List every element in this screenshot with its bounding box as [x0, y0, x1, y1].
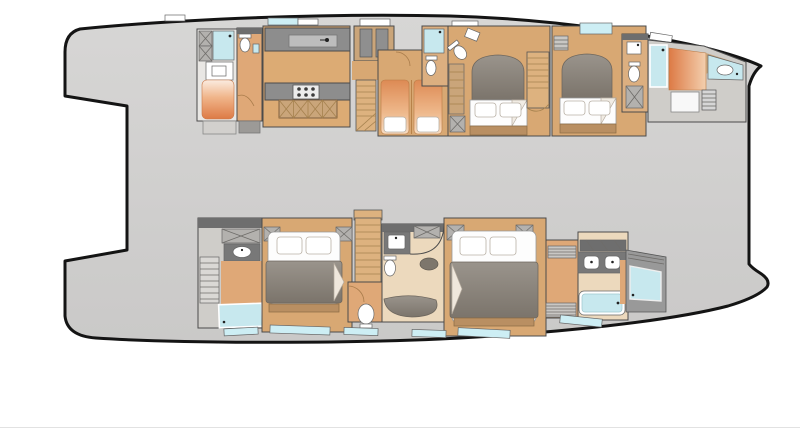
ladder: [702, 90, 716, 110]
shelf-unit: [449, 64, 464, 114]
toilet: [426, 56, 437, 76]
berth: [671, 92, 699, 112]
bathtub: [579, 291, 625, 315]
plinth: [470, 126, 527, 135]
pillow: [306, 237, 331, 254]
stool: [420, 258, 438, 270]
cabinet: [580, 240, 626, 251]
pillow: [417, 117, 439, 132]
deck-hatch: [298, 19, 318, 25]
sink: [627, 42, 641, 54]
hull-window: [344, 327, 378, 335]
guest-cabin: [262, 218, 352, 335]
locker: [450, 116, 465, 132]
shower: [630, 266, 661, 301]
guest-head: [422, 26, 448, 86]
toilet: [384, 256, 396, 276]
bow-berth: [669, 48, 706, 90]
hull-window: [268, 18, 298, 25]
plinth: [269, 304, 339, 312]
plinth: [560, 124, 616, 133]
port-hull: [165, 15, 746, 136]
page-divider: [0, 427, 800, 428]
locker: [199, 31, 212, 61]
hull-window: [270, 325, 330, 335]
day-wc: [348, 282, 382, 328]
pillow: [589, 101, 610, 115]
ensuite-head: [622, 34, 648, 112]
steps-louver: [200, 257, 219, 303]
double-bed: [470, 55, 527, 135]
deck-plan: [0, 0, 800, 434]
toilet: [629, 62, 641, 82]
stove: [293, 85, 319, 99]
louver-cabinet: [548, 246, 576, 258]
pillow: [564, 101, 585, 115]
pillow: [475, 103, 496, 117]
locker: [414, 226, 440, 238]
crew-berth: [202, 80, 234, 119]
louver-shelf: [554, 36, 568, 50]
locker: [222, 229, 260, 243]
shower: [650, 45, 667, 87]
vanity-sink: [206, 62, 233, 80]
deck-hatch: [360, 19, 390, 26]
shower-panel: [253, 44, 259, 53]
pillow: [460, 237, 486, 255]
galley-cabinets: [279, 100, 337, 118]
hull-window: [224, 327, 258, 336]
stairs-down: [356, 80, 376, 131]
pillow: [490, 237, 516, 255]
stairs-down: [527, 52, 549, 111]
sink: [233, 247, 251, 258]
plinth: [203, 121, 236, 134]
stairs-down: [354, 210, 382, 282]
galley: [263, 26, 350, 127]
double-bed: [560, 54, 616, 133]
toilet: [358, 304, 374, 328]
forward-shower: [620, 250, 666, 312]
hull-window: [412, 329, 446, 337]
plinth: [239, 121, 260, 133]
deck-hatch: [165, 15, 185, 21]
pillow: [500, 103, 521, 117]
hull-window: [580, 23, 612, 34]
double-bed: [450, 231, 538, 326]
pillow: [384, 117, 406, 132]
crew-cabin: [197, 29, 237, 134]
crew-head: [237, 28, 262, 133]
pillow: [277, 237, 302, 254]
mid-bathroom: [382, 224, 444, 322]
locker: [626, 86, 643, 108]
aft-bathroom: [198, 218, 262, 336]
dressing-area: [546, 240, 578, 318]
yacht-deck-plan-page: Metres 252423222120191817161514131211109…: [0, 0, 800, 434]
galley-sink: [289, 35, 337, 47]
owner-cabin: [444, 218, 546, 338]
toilet: [239, 34, 251, 52]
double-bed: [266, 232, 344, 312]
bow-cabin: [648, 40, 746, 122]
shower: [219, 303, 263, 327]
metres-scale: Metres 252423222120191817161514131211109…: [0, 398, 800, 428]
plinth: [454, 318, 534, 326]
